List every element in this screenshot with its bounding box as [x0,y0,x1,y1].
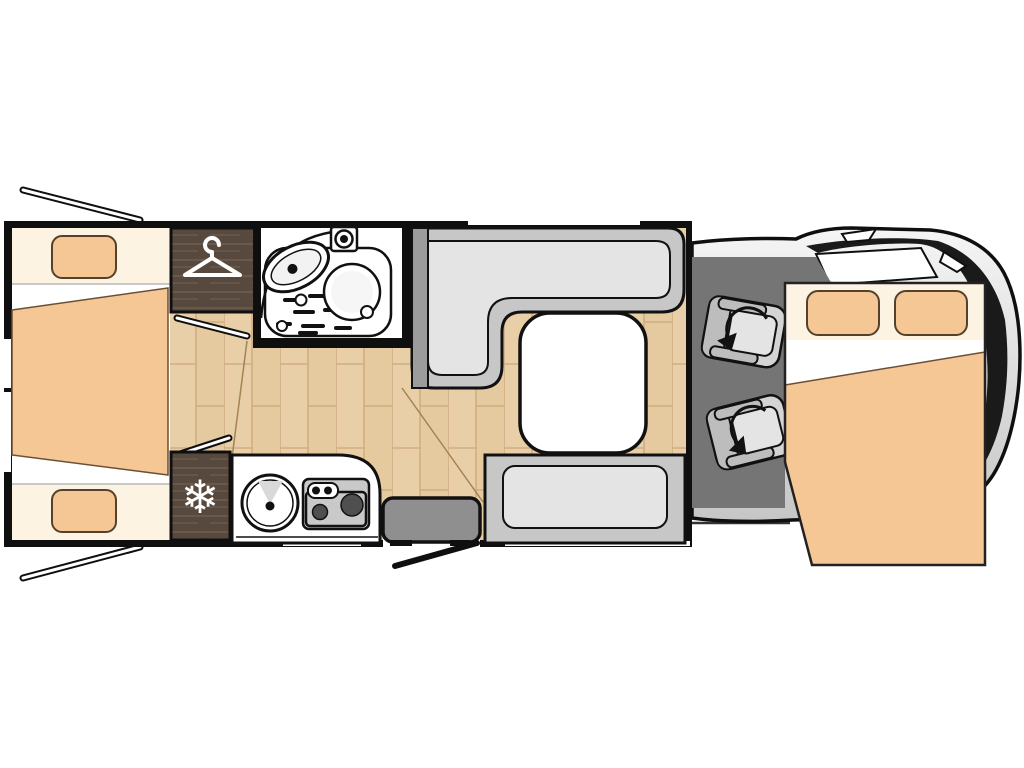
snowflake-icon: ❄ [181,470,220,524]
kitchen [232,455,380,543]
burner-small [313,505,328,520]
rear-window-flap-top [23,190,140,220]
pillow-bottom [52,490,116,532]
rear-wall-window-lower [3,392,11,472]
l-bench-side-panel [412,228,428,388]
pillow-top [52,236,116,278]
stove [303,479,369,529]
floorplan-svg: ❄ [0,0,1024,768]
overcab-pillow-right [895,291,967,335]
shower-faucet [331,227,357,251]
burner-large [341,494,363,516]
bed-center-extension [12,288,168,475]
wardrobe-cabinet [171,228,255,312]
overcab-bed [785,283,985,565]
fridge: ❄ [171,452,230,540]
entrance [383,498,480,566]
door-hinge-1 [390,540,412,546]
wardrobe [171,228,255,312]
rear-bedroom [12,228,170,540]
bathroom [253,221,414,348]
overcab-pillow-left [807,291,879,335]
bottom-bench-cushion [503,466,667,528]
overcab-bed-blanket [785,352,985,565]
entry-step [383,498,480,542]
rear-window-flap-bottom [23,547,140,578]
dinette-table [520,313,646,453]
swivel-seat-driver [700,295,788,370]
toilet [324,264,380,320]
top-wall-window [468,219,640,225]
rear-wall-window-upper [3,339,11,388]
floorplan-stage: ❄ [0,0,1024,768]
kitchen-sink [242,475,298,531]
